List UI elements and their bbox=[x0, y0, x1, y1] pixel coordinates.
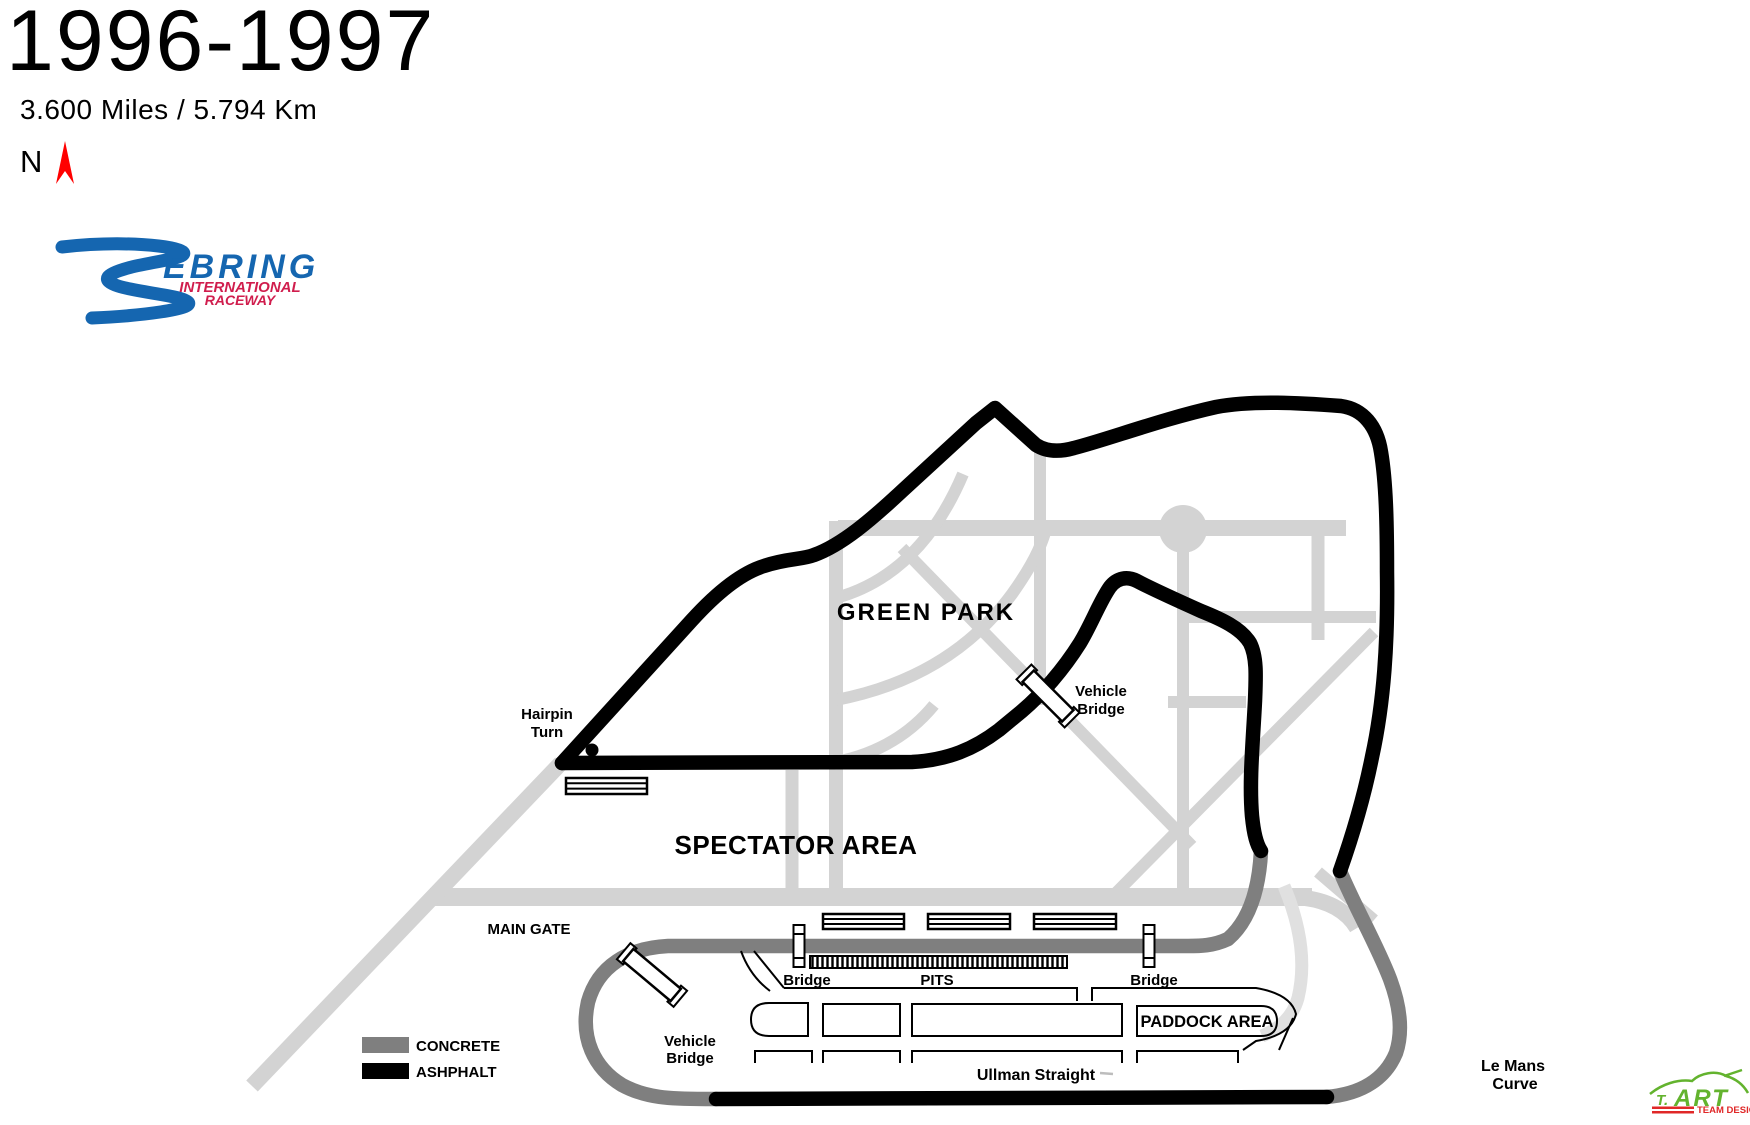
label-spectator-area: SPECTATOR AREA bbox=[675, 830, 918, 860]
label-hairpin-2: Turn bbox=[531, 724, 563, 741]
pit-entry-line bbox=[741, 951, 770, 991]
paddock-row2-box bbox=[1137, 1051, 1238, 1063]
label-gate-vehicle-bridge-1: Vehicle bbox=[664, 1033, 716, 1050]
credit-prefix: T. bbox=[1656, 1092, 1668, 1109]
pit-lane-strip bbox=[810, 956, 1067, 968]
paddock-box bbox=[751, 1003, 808, 1036]
roundabout bbox=[1159, 505, 1207, 553]
paddock-box bbox=[823, 1004, 900, 1036]
paddock-box bbox=[912, 1004, 1122, 1036]
grandstand-hairpin bbox=[566, 778, 647, 794]
label-lemans-1: Le Mans bbox=[1481, 1058, 1545, 1075]
road-arc-3 bbox=[836, 705, 934, 762]
vehicle-bridge-greenpark-icon bbox=[1017, 665, 1080, 728]
grandstand-pits-2 bbox=[928, 914, 1010, 929]
credit-logo: T. ART TEAM DESIGN bbox=[1650, 1070, 1750, 1116]
credit-subtitle: TEAM DESIGN bbox=[1697, 1105, 1750, 1116]
legend-asphalt-label: ASHPHALT bbox=[416, 1064, 497, 1081]
hairpin-marker-dot bbox=[586, 744, 599, 757]
label-gate-vehicle-bridge-2: Bridge bbox=[666, 1050, 714, 1067]
bridge-west-icon bbox=[794, 925, 805, 967]
grandstand-pits-3 bbox=[1034, 914, 1116, 929]
paddock-row2-box bbox=[823, 1051, 900, 1063]
legend-concrete-label: CONCRETE bbox=[416, 1038, 500, 1055]
legend-concrete-swatch bbox=[362, 1037, 409, 1053]
bridge-deck bbox=[623, 949, 681, 1001]
grandstand-pits-1 bbox=[823, 914, 904, 929]
label-vehicle-bridge-2: Bridge bbox=[1077, 701, 1125, 718]
label-paddock-area: PADDOCK AREA bbox=[1141, 1013, 1274, 1031]
pit-boundary-west bbox=[784, 988, 1077, 1001]
credit-rule bbox=[1652, 1107, 1694, 1110]
road-diagonal-2 bbox=[1112, 632, 1374, 897]
label-lemans-2: Curve bbox=[1492, 1076, 1537, 1093]
page: { "header": { "title": "1996-1997", "tra… bbox=[0, 0, 1750, 1125]
label-pits: PITS bbox=[920, 972, 953, 989]
pit-entry-line bbox=[754, 951, 784, 988]
legend-asphalt-swatch bbox=[362, 1063, 409, 1079]
paddock-row2-box bbox=[912, 1051, 1122, 1063]
ullman-dash bbox=[1100, 1073, 1113, 1074]
credit-rule bbox=[1652, 1111, 1694, 1114]
track-map: GREEN PARK SPECTATOR AREA MAIN GATE Hair… bbox=[0, 0, 1750, 1125]
label-bridge-east: Bridge bbox=[1130, 972, 1178, 989]
label-vehicle-bridge-1: Vehicle bbox=[1075, 683, 1127, 700]
legend: CONCRETE ASHPHALT bbox=[362, 1037, 500, 1081]
bridge-east-icon bbox=[1144, 925, 1155, 967]
track-ullman-straight bbox=[716, 1097, 1327, 1099]
label-hairpin-1: Hairpin bbox=[521, 706, 573, 723]
label-green-park: GREEN PARK bbox=[837, 599, 1015, 626]
label-bridge-west: Bridge bbox=[783, 972, 831, 989]
label-main-gate: MAIN GATE bbox=[487, 921, 570, 938]
paddock-row2-box bbox=[755, 1051, 812, 1063]
label-ullman-straight: Ullman Straight bbox=[977, 1067, 1096, 1084]
